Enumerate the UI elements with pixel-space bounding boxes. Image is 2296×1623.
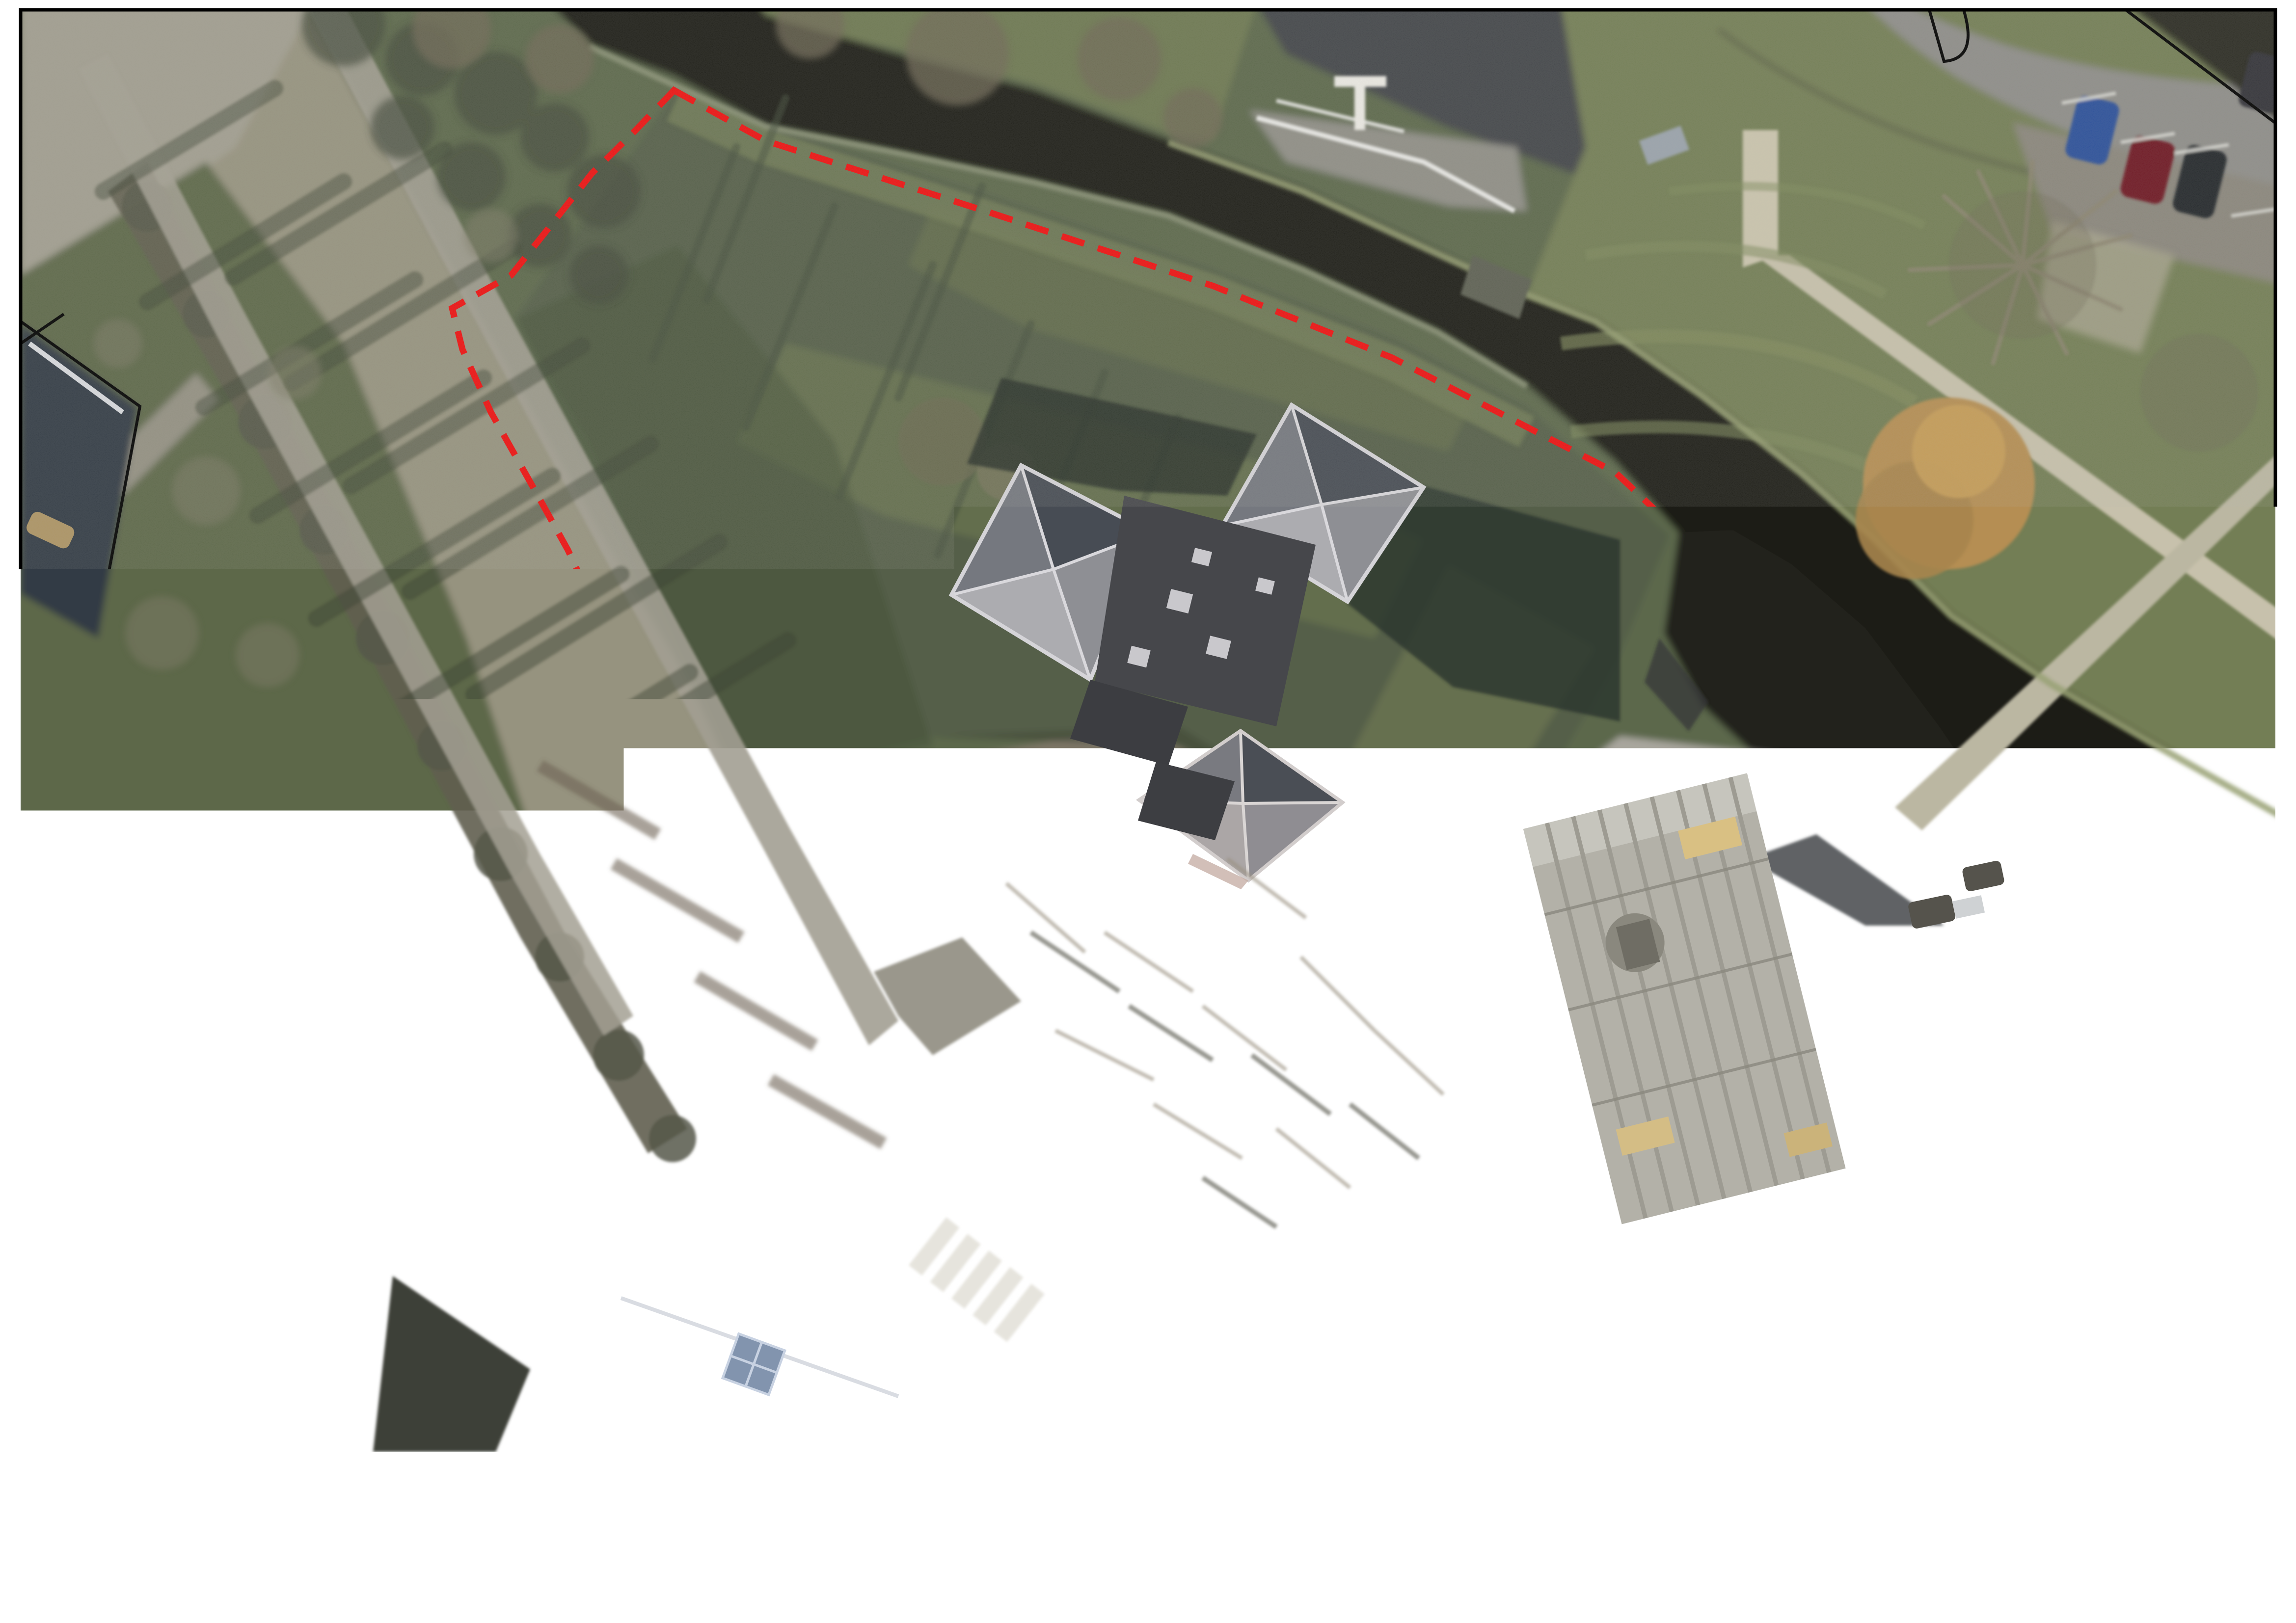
svg-text:Willem van Aalst -: Willem van Aalst -	[2067, 1356, 2239, 1380]
svg-text:7: 7	[1861, 1312, 1869, 1329]
svg-text:BügelHajema: BügelHajema	[1932, 1477, 2199, 1532]
svg-text:KadastraleGrens: KadastraleGrens	[102, 1476, 304, 1507]
svg-text:15: 15	[1050, 1531, 1087, 1569]
svg-text:Ruimte voor de leefomgeving: Ruimte voor de leefomgeving	[1933, 1536, 2251, 1564]
svg-text:45: 45	[1514, 1531, 1551, 1569]
svg-text:30: 30	[1278, 1531, 1316, 1569]
svg-text:orbuurt: orbuurt	[1754, 1019, 1837, 1045]
svg-text:Kroon: Kroon	[1970, 1392, 2051, 1426]
svg-text:Anna Paulowna: Anna Paulowna	[1923, 1048, 2172, 1079]
svg-text:Kleine Sluis: Kleine Sluis	[2105, 1164, 2245, 1190]
svg-text:Esri Nederland, Jan: Esri Nederland, Jan	[2049, 1328, 2239, 1352]
svg-text:0: 0	[828, 1531, 847, 1569]
svg-text:Plangebied: Plangebied	[102, 1523, 237, 1553]
svg-text:N: N	[1676, 1481, 1697, 1513]
svg-text:www.imergis.nl: www.imergis.nl	[2094, 1384, 2239, 1408]
svg-text:N249: N249	[2191, 1057, 2236, 1078]
svg-text:8: 8	[2015, 1273, 2024, 1289]
svg-text:Meter: Meter	[1540, 1498, 1608, 1527]
